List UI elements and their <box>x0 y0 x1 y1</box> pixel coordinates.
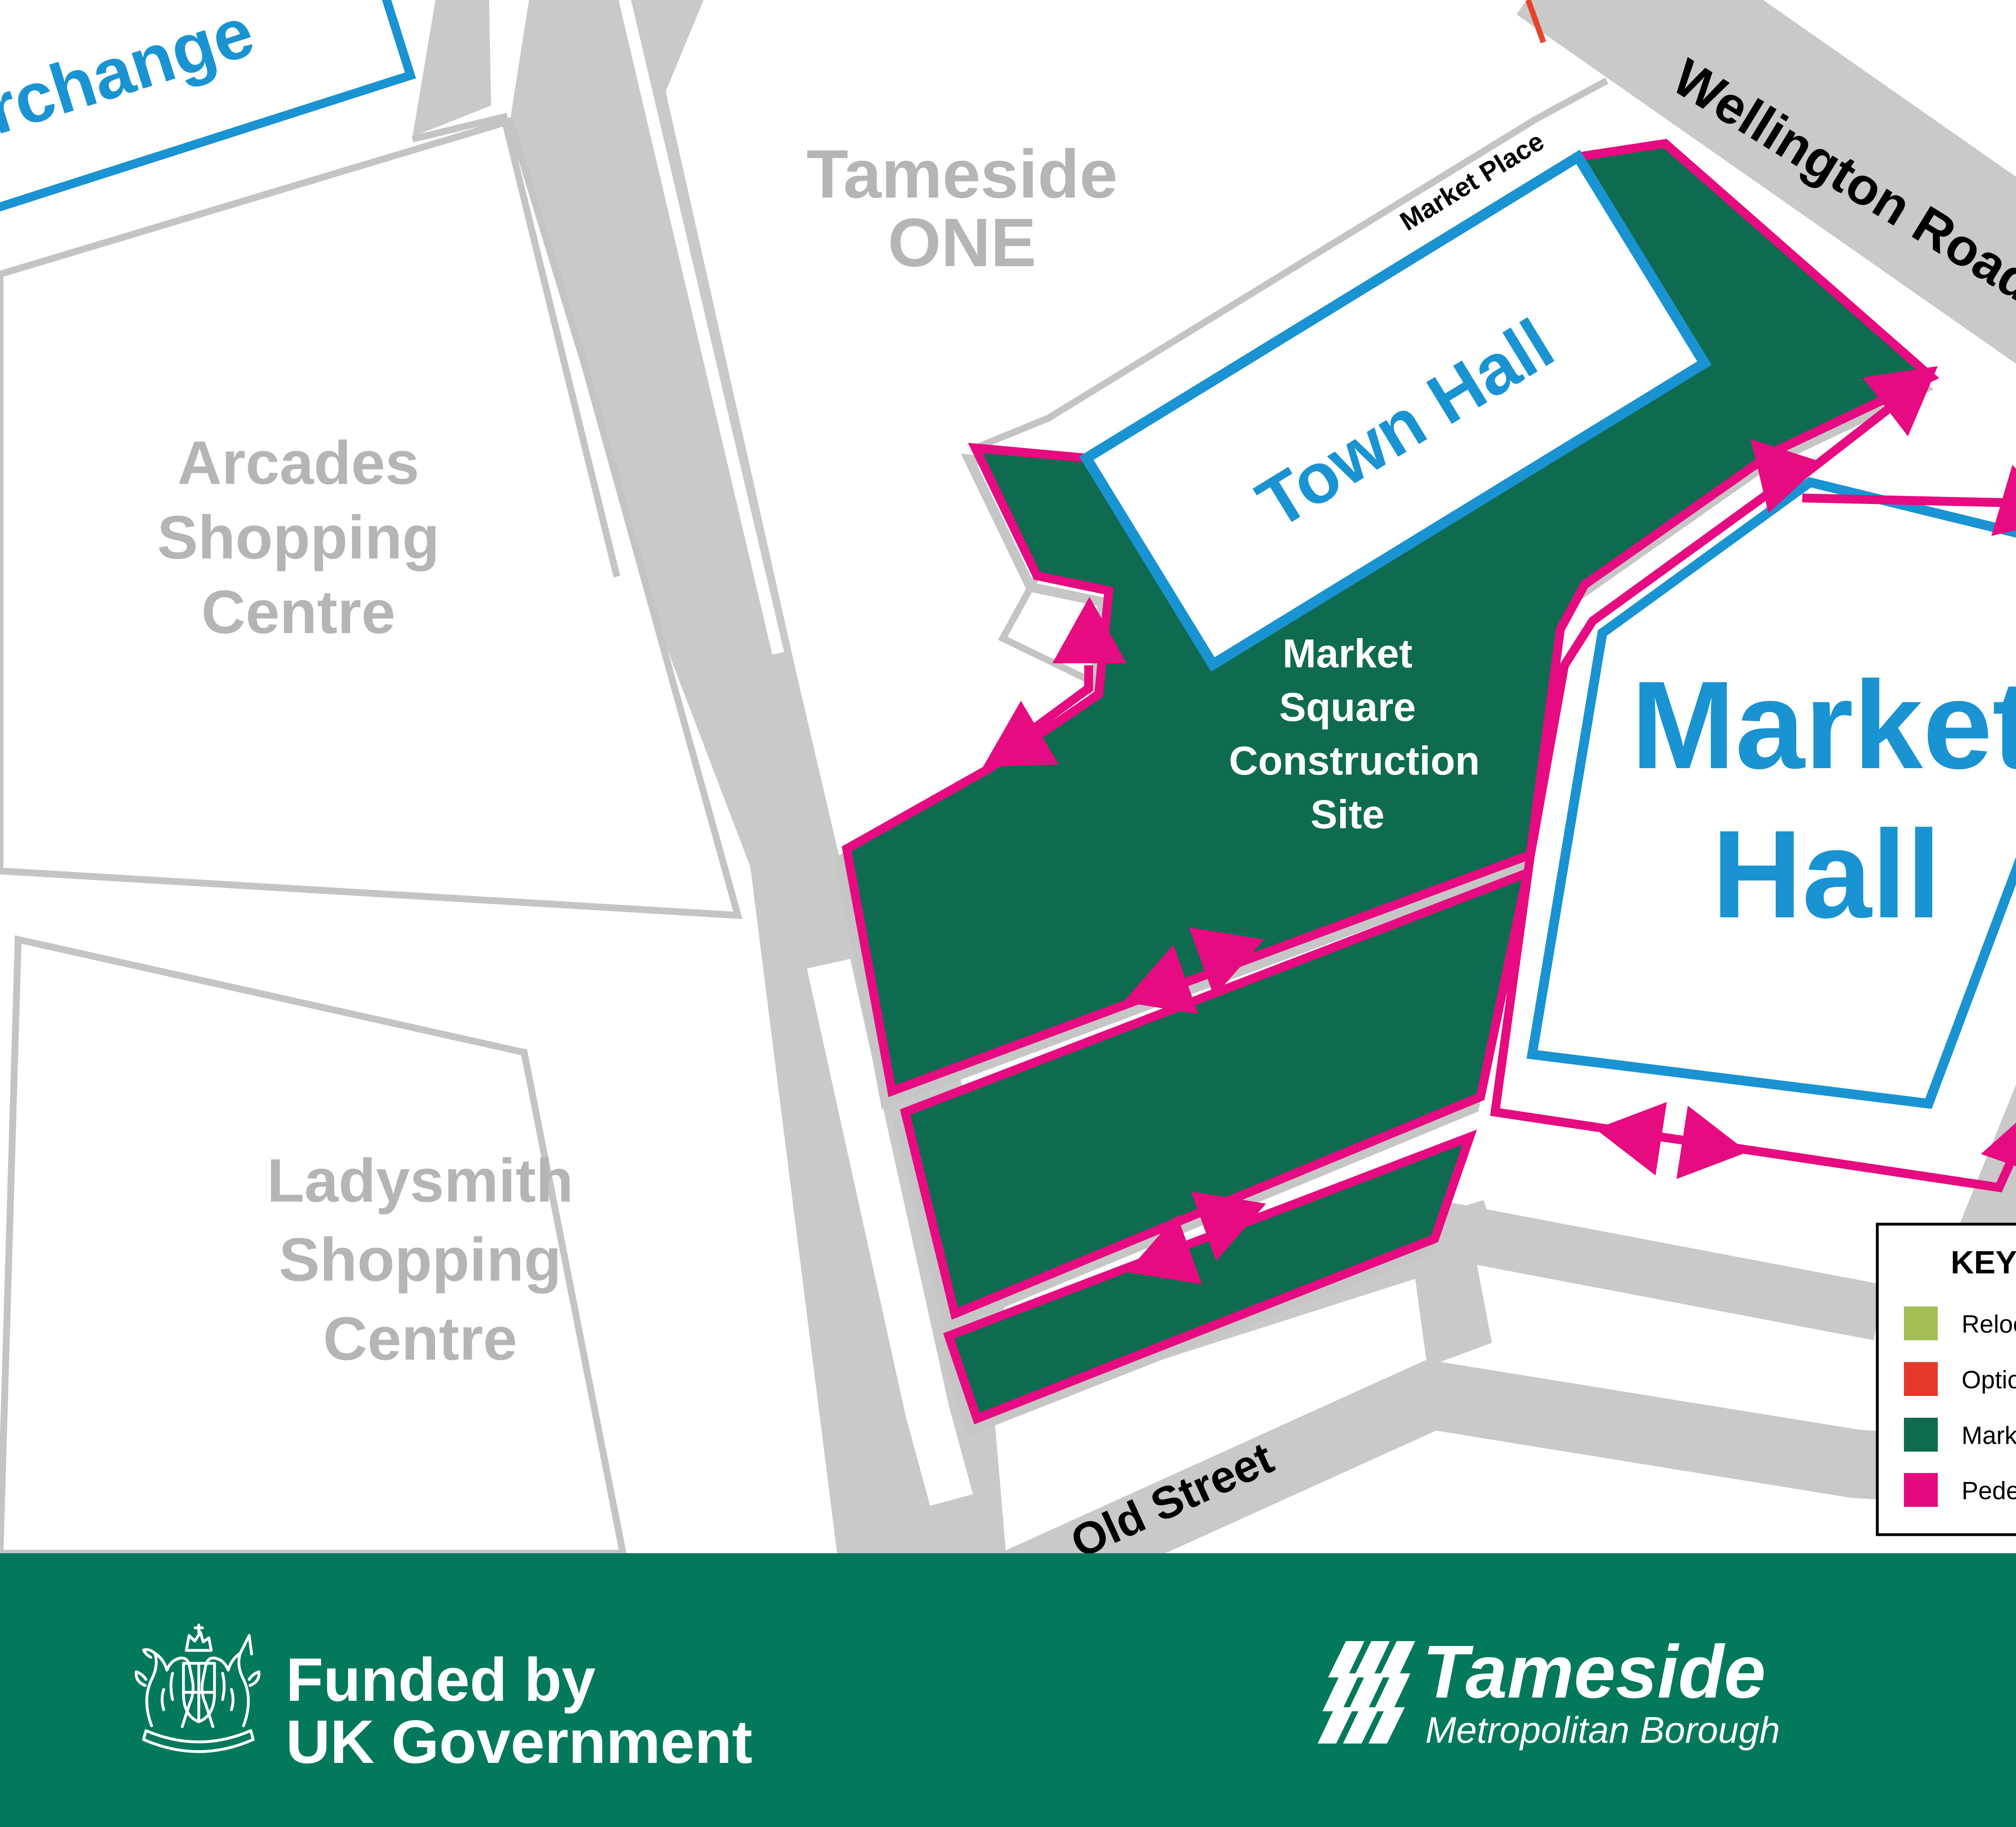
svg-text:Centre: Centre <box>201 578 395 646</box>
svg-text:Metropolitan Borough: Metropolitan Borough <box>1425 1710 1780 1751</box>
svg-text:Ladysmith: Ladysmith <box>267 1146 573 1215</box>
svg-text:Arcades: Arcades <box>177 429 419 497</box>
svg-text:KEY: KEY <box>1951 1244 2016 1280</box>
svg-text:Funded by: Funded by <box>286 1646 596 1714</box>
svg-text:Construction: Construction <box>1229 738 1480 783</box>
svg-text:Market Square construction sit: Market Square construction site <box>1962 1422 2016 1450</box>
svg-text:Relocated Kiosk: Relocated Kiosk <box>1962 1310 2016 1338</box>
svg-text:Market: Market <box>1631 655 2016 795</box>
svg-text:Shopping: Shopping <box>279 1225 562 1294</box>
svg-text:Hall: Hall <box>1712 804 1941 944</box>
svg-text:Tameside: Tameside <box>806 136 1118 212</box>
svg-text:Pedestrian Access: Pedestrian Access <box>1962 1477 2016 1505</box>
svg-text:Site: Site <box>1310 792 1384 837</box>
svg-text:Tameside: Tameside <box>1422 1630 1766 1714</box>
svg-text:Square: Square <box>1279 685 1416 730</box>
svg-text:Optional Market Gazebo: Optional Market Gazebo <box>1962 1366 2016 1394</box>
svg-text:Centre: Centre <box>323 1304 517 1373</box>
svg-text:Shopping: Shopping <box>157 503 440 572</box>
svg-text:UK Government: UK Government <box>286 1708 752 1776</box>
svg-text:ONE: ONE <box>888 204 1036 281</box>
svg-text:Market: Market <box>1283 631 1412 676</box>
